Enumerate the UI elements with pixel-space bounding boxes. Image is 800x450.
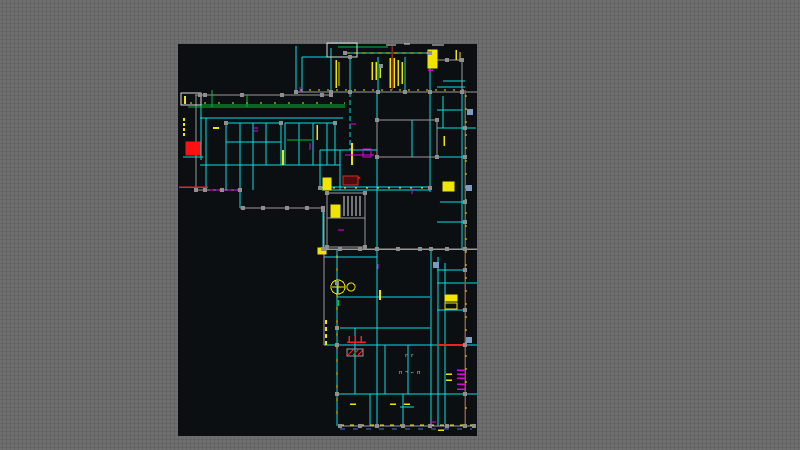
cad-canvas[interactable]: [178, 44, 477, 436]
viewer-background: г гп ¬ ⌐ п: [0, 0, 800, 450]
